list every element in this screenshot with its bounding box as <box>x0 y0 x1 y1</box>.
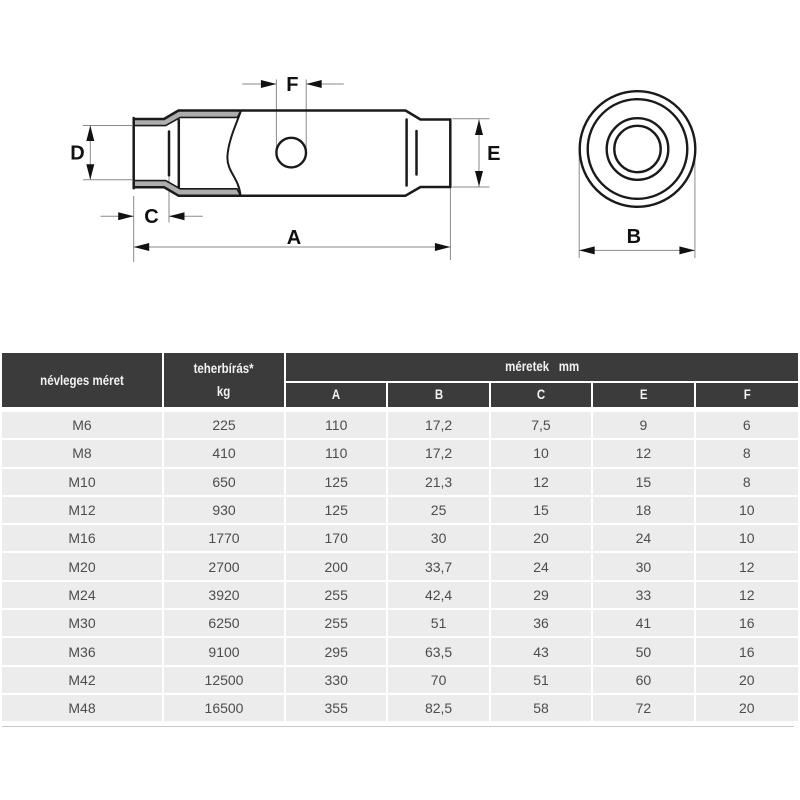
svg-text:B: B <box>627 226 641 248</box>
svg-text:F: F <box>286 74 298 96</box>
svg-text:C: C <box>144 206 158 228</box>
svg-text:D: D <box>70 143 84 165</box>
svg-text:A: A <box>287 227 301 249</box>
svg-text:E: E <box>487 143 500 165</box>
